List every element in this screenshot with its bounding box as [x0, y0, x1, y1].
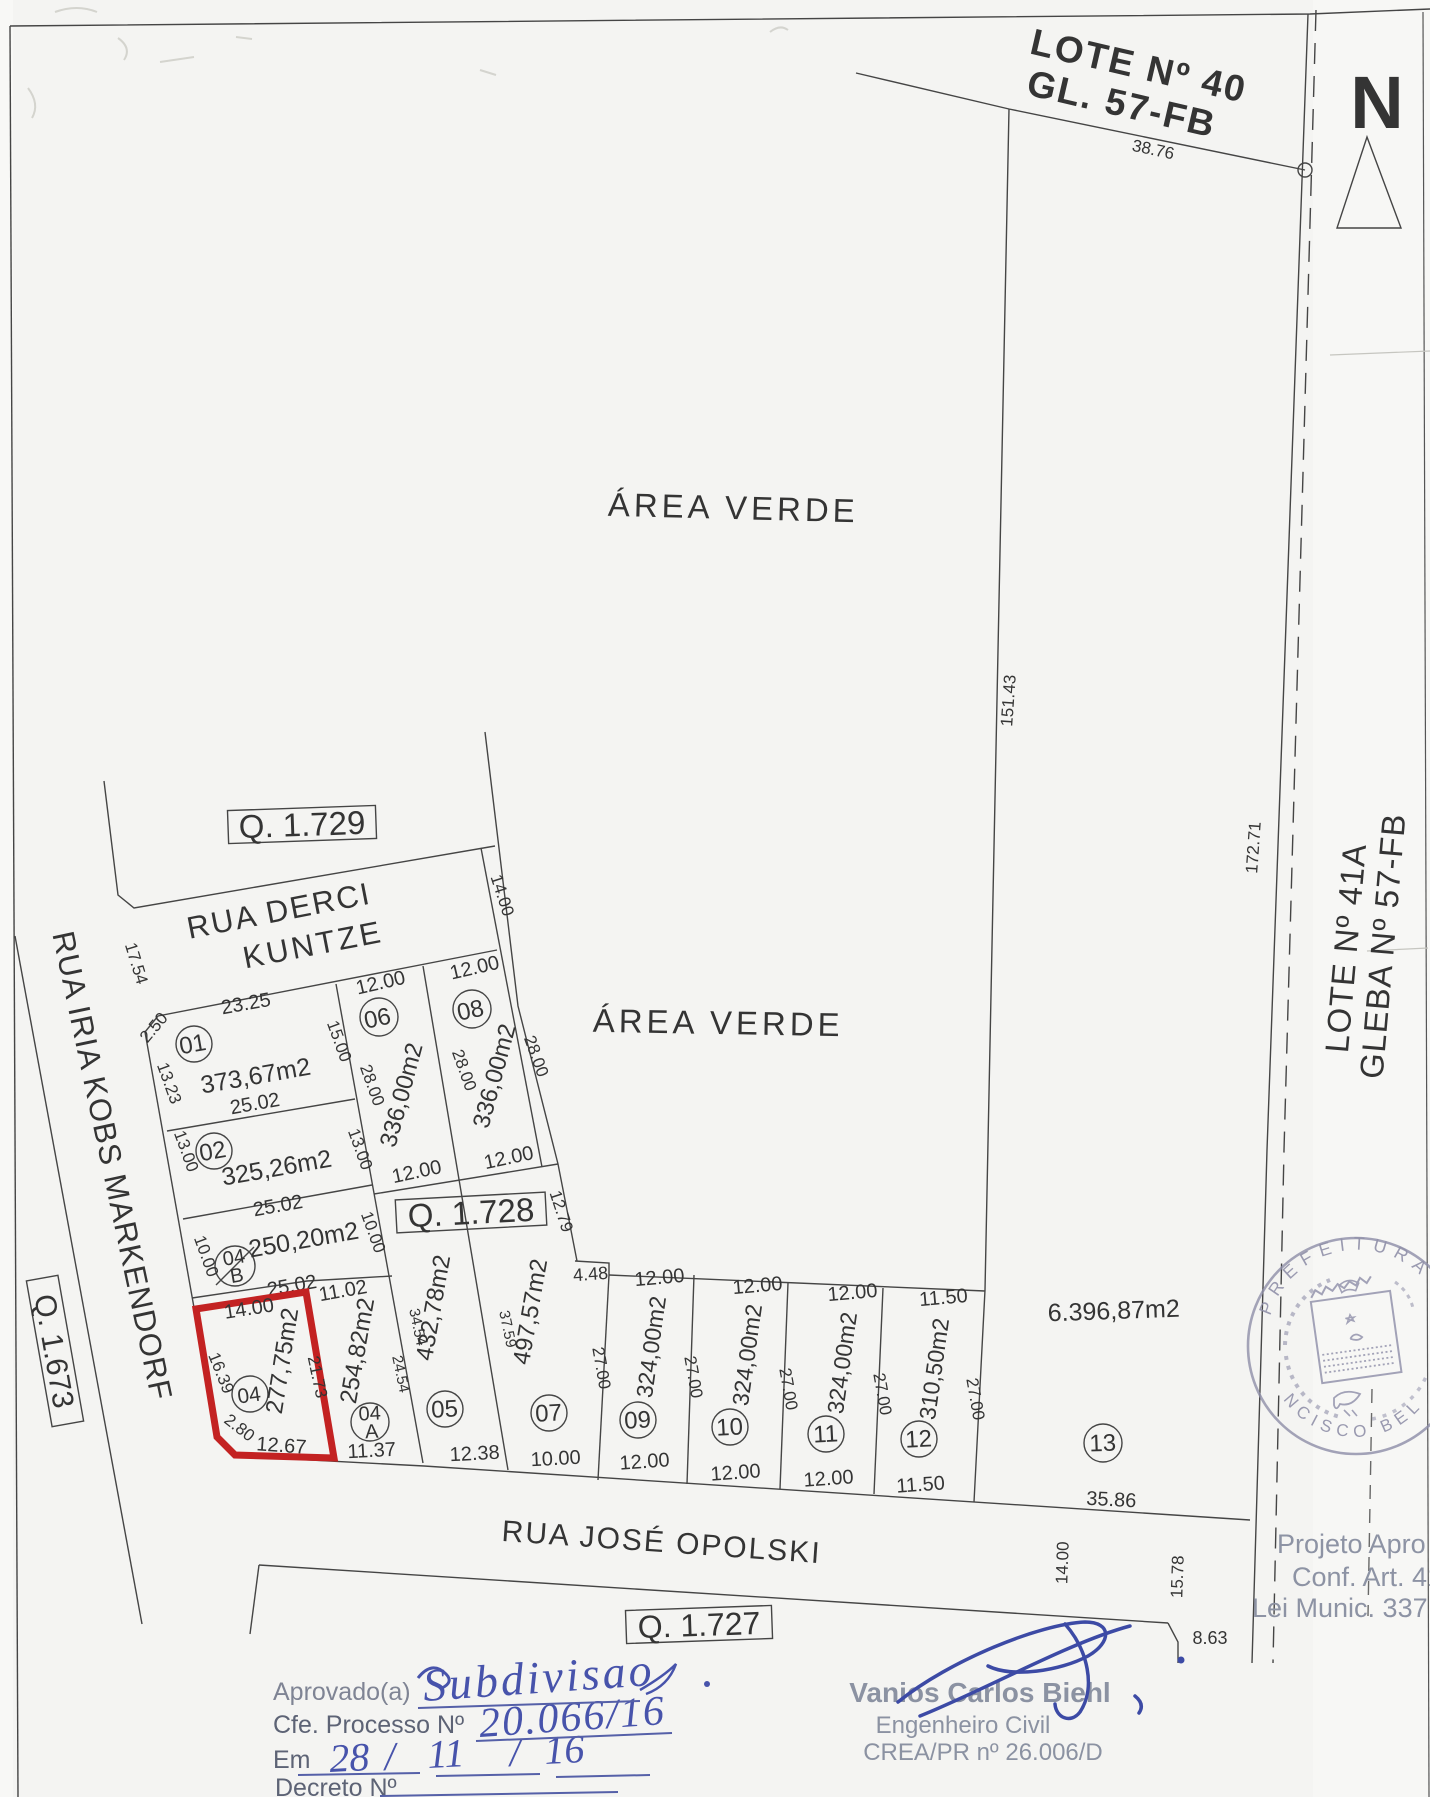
svg-text:172.71: 172.71: [1242, 821, 1265, 874]
svg-text:CREA/PR nº 26.006/D: CREA/PR nº 26.006/D: [863, 1739, 1103, 1766]
svg-text:35.86: 35.86: [1086, 1488, 1137, 1513]
svg-text:10: 10: [716, 1413, 744, 1441]
svg-text:12.67: 12.67: [256, 1433, 307, 1458]
svg-text:Q. 1.729: Q. 1.729: [238, 804, 366, 845]
svg-text:06: 06: [362, 1003, 394, 1035]
svg-text:13: 13: [1089, 1430, 1117, 1458]
svg-text:12: 12: [905, 1425, 933, 1453]
svg-text:Conf. Art. 41: Conf. Art. 41: [1292, 1562, 1430, 1592]
svg-text:12.00: 12.00: [634, 1265, 686, 1291]
svg-text:12.38: 12.38: [449, 1442, 500, 1467]
svg-text:07: 07: [535, 1399, 563, 1427]
svg-text:05: 05: [431, 1395, 459, 1423]
svg-text:09: 09: [624, 1406, 652, 1434]
svg-text:4.48: 4.48: [572, 1263, 608, 1285]
svg-text:12.00: 12.00: [732, 1273, 784, 1299]
svg-text:6.396,87m2: 6.396,87m2: [1047, 1295, 1180, 1328]
svg-text:Engenheiro Civil: Engenheiro Civil: [876, 1712, 1051, 1739]
svg-text:16: 16: [543, 1726, 585, 1773]
svg-text:Em: Em: [273, 1746, 311, 1774]
svg-text:Aprovado(a): Aprovado(a): [273, 1678, 411, 1706]
svg-text:08: 08: [455, 995, 487, 1027]
svg-text:N: N: [1350, 61, 1403, 144]
svg-text:Q. 1.727: Q. 1.727: [637, 1605, 761, 1645]
svg-text:11.50: 11.50: [918, 1285, 968, 1311]
svg-text:11.37: 11.37: [347, 1439, 397, 1464]
svg-text:Lei Munic. 337: Lei Munic. 337: [1252, 1593, 1428, 1623]
svg-text:04: 04: [236, 1383, 263, 1409]
svg-text:ÁREA VERDE: ÁREA VERDE: [592, 1002, 844, 1043]
svg-text:01: 01: [177, 1029, 208, 1060]
svg-text:11: 11: [812, 1420, 838, 1448]
svg-text:12.00: 12.00: [827, 1280, 879, 1306]
svg-text:10.00: 10.00: [530, 1447, 581, 1472]
svg-text:11.50: 11.50: [896, 1472, 946, 1497]
svg-text:151.43: 151.43: [997, 674, 1020, 727]
svg-text:15.78: 15.78: [1167, 1555, 1187, 1598]
svg-text:12.00: 12.00: [803, 1466, 854, 1491]
svg-text:ÁREA VERDE: ÁREA VERDE: [607, 486, 859, 530]
svg-text:14.00: 14.00: [1052, 1541, 1072, 1584]
svg-text:8.63: 8.63: [1192, 1628, 1227, 1648]
svg-text:11: 11: [426, 1730, 465, 1777]
svg-text:12.00: 12.00: [710, 1460, 761, 1485]
svg-text:12.00: 12.00: [619, 1449, 670, 1474]
svg-text:Projeto Apro: Projeto Apro: [1277, 1529, 1426, 1559]
svg-text:Q. 1.728: Q. 1.728: [407, 1191, 535, 1235]
svg-text:Vanios Carlos Biehl: Vanios Carlos Biehl: [849, 1677, 1110, 1708]
